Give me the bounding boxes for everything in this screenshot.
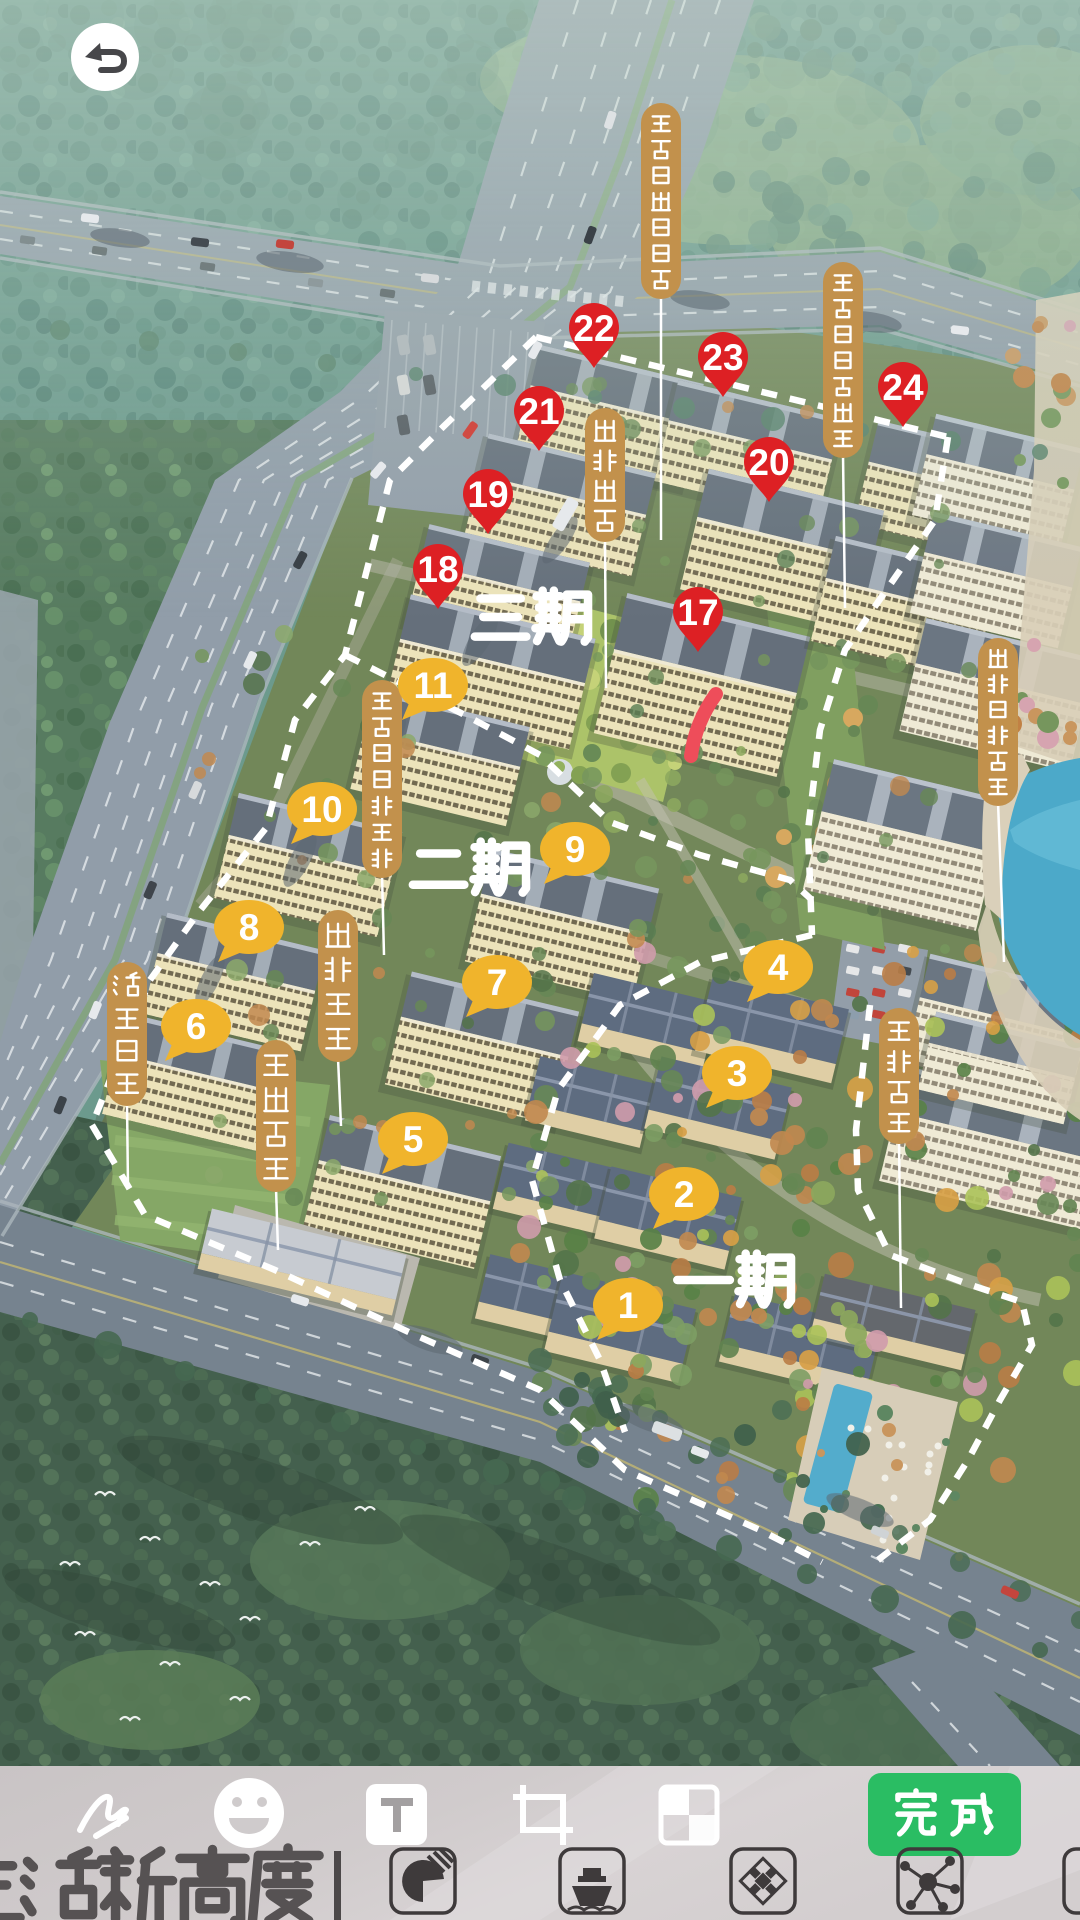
svg-text:5: 5	[403, 1119, 424, 1160]
svg-text:11: 11	[413, 665, 452, 706]
svg-text:10: 10	[301, 789, 342, 830]
svg-text:4: 4	[768, 947, 789, 988]
svg-text:18: 18	[417, 549, 458, 590]
svg-text:20: 20	[748, 442, 789, 483]
svg-text:19: 19	[467, 474, 508, 515]
svg-text:21: 21	[518, 391, 559, 432]
svg-text:23: 23	[702, 337, 743, 378]
svg-text:22: 22	[573, 308, 614, 349]
svg-text:17: 17	[677, 592, 718, 633]
svg-text:24: 24	[882, 367, 924, 408]
svg-text:2: 2	[674, 1174, 695, 1215]
svg-text:6: 6	[186, 1006, 207, 1047]
svg-text:3: 3	[727, 1053, 748, 1094]
svg-text:9: 9	[565, 829, 586, 870]
svg-text:7: 7	[487, 962, 508, 1003]
svg-text:8: 8	[239, 907, 260, 948]
svg-text:1: 1	[618, 1285, 639, 1326]
